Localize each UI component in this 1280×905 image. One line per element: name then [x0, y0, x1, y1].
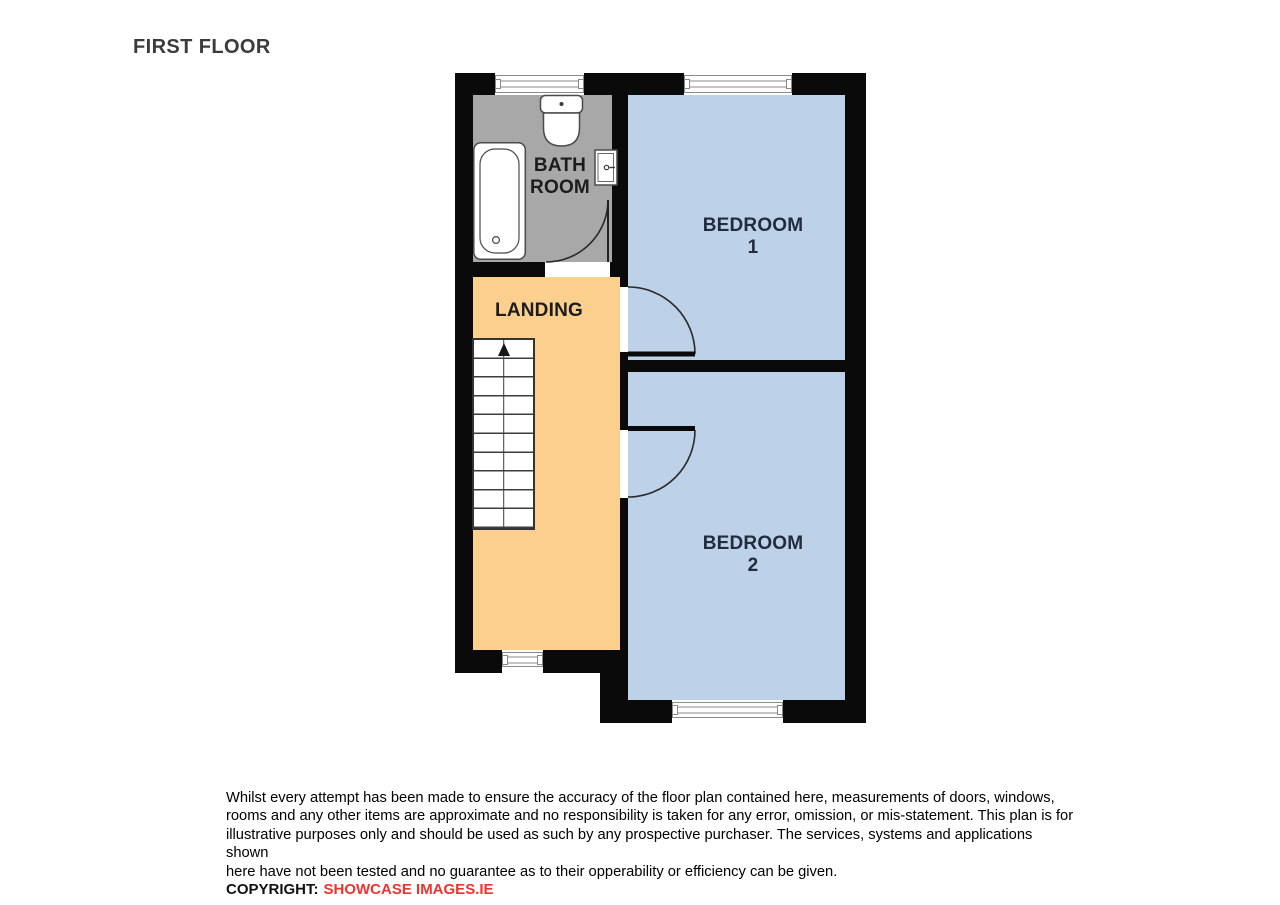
disclaimer-text: Whilst every attempt has been made to en… [226, 789, 1076, 881]
bedroom-2-label: BEDROOM 2 [697, 533, 810, 577]
window [495, 75, 584, 93]
landing-label: LANDING [495, 300, 583, 322]
window-glazing [685, 81, 791, 88]
copyright-line: COPYRIGHT:SHOWCASE IMAGES.IE [226, 881, 494, 898]
bathroom-label: BATH ROOM [530, 155, 590, 199]
window [502, 652, 543, 667]
wall [783, 700, 866, 723]
window-end-cap [684, 79, 690, 89]
window-end-cap [578, 79, 584, 89]
window-end-cap [777, 705, 783, 715]
copyright-label: COPYRIGHT: [226, 881, 319, 898]
wall [543, 650, 628, 673]
wall [610, 262, 628, 277]
wall [473, 262, 545, 277]
wall [600, 700, 672, 723]
wall [845, 73, 866, 723]
wall [628, 360, 845, 372]
staircase [472, 338, 535, 530]
wall [620, 277, 628, 287]
window [684, 75, 792, 93]
bedroom-1-label: BEDROOM 1 [697, 215, 810, 259]
wall [455, 650, 502, 673]
window-end-cap [786, 79, 792, 89]
page-title: FIRST FLOOR [133, 36, 271, 59]
wall [584, 73, 684, 95]
window [672, 702, 783, 718]
stairs-up-arrow-icon [498, 343, 510, 356]
window-end-cap [502, 655, 508, 665]
window-end-cap [672, 705, 678, 715]
copyright-holder: SHOWCASE IMAGES.IE [324, 881, 494, 898]
floor-plan: BATH ROOM BEDROOM 1 LANDING BEDROOM 2 [455, 73, 866, 723]
wall [620, 498, 628, 650]
stair-centerline [503, 340, 505, 528]
wall [612, 95, 628, 277]
wall [455, 73, 473, 673]
window-end-cap [495, 79, 501, 89]
floor-plan-page: FIRST FLOOR [0, 0, 1280, 905]
window-end-cap [537, 655, 543, 665]
window-glazing [496, 81, 583, 88]
wall [620, 352, 628, 430]
window-glazing [673, 707, 782, 714]
